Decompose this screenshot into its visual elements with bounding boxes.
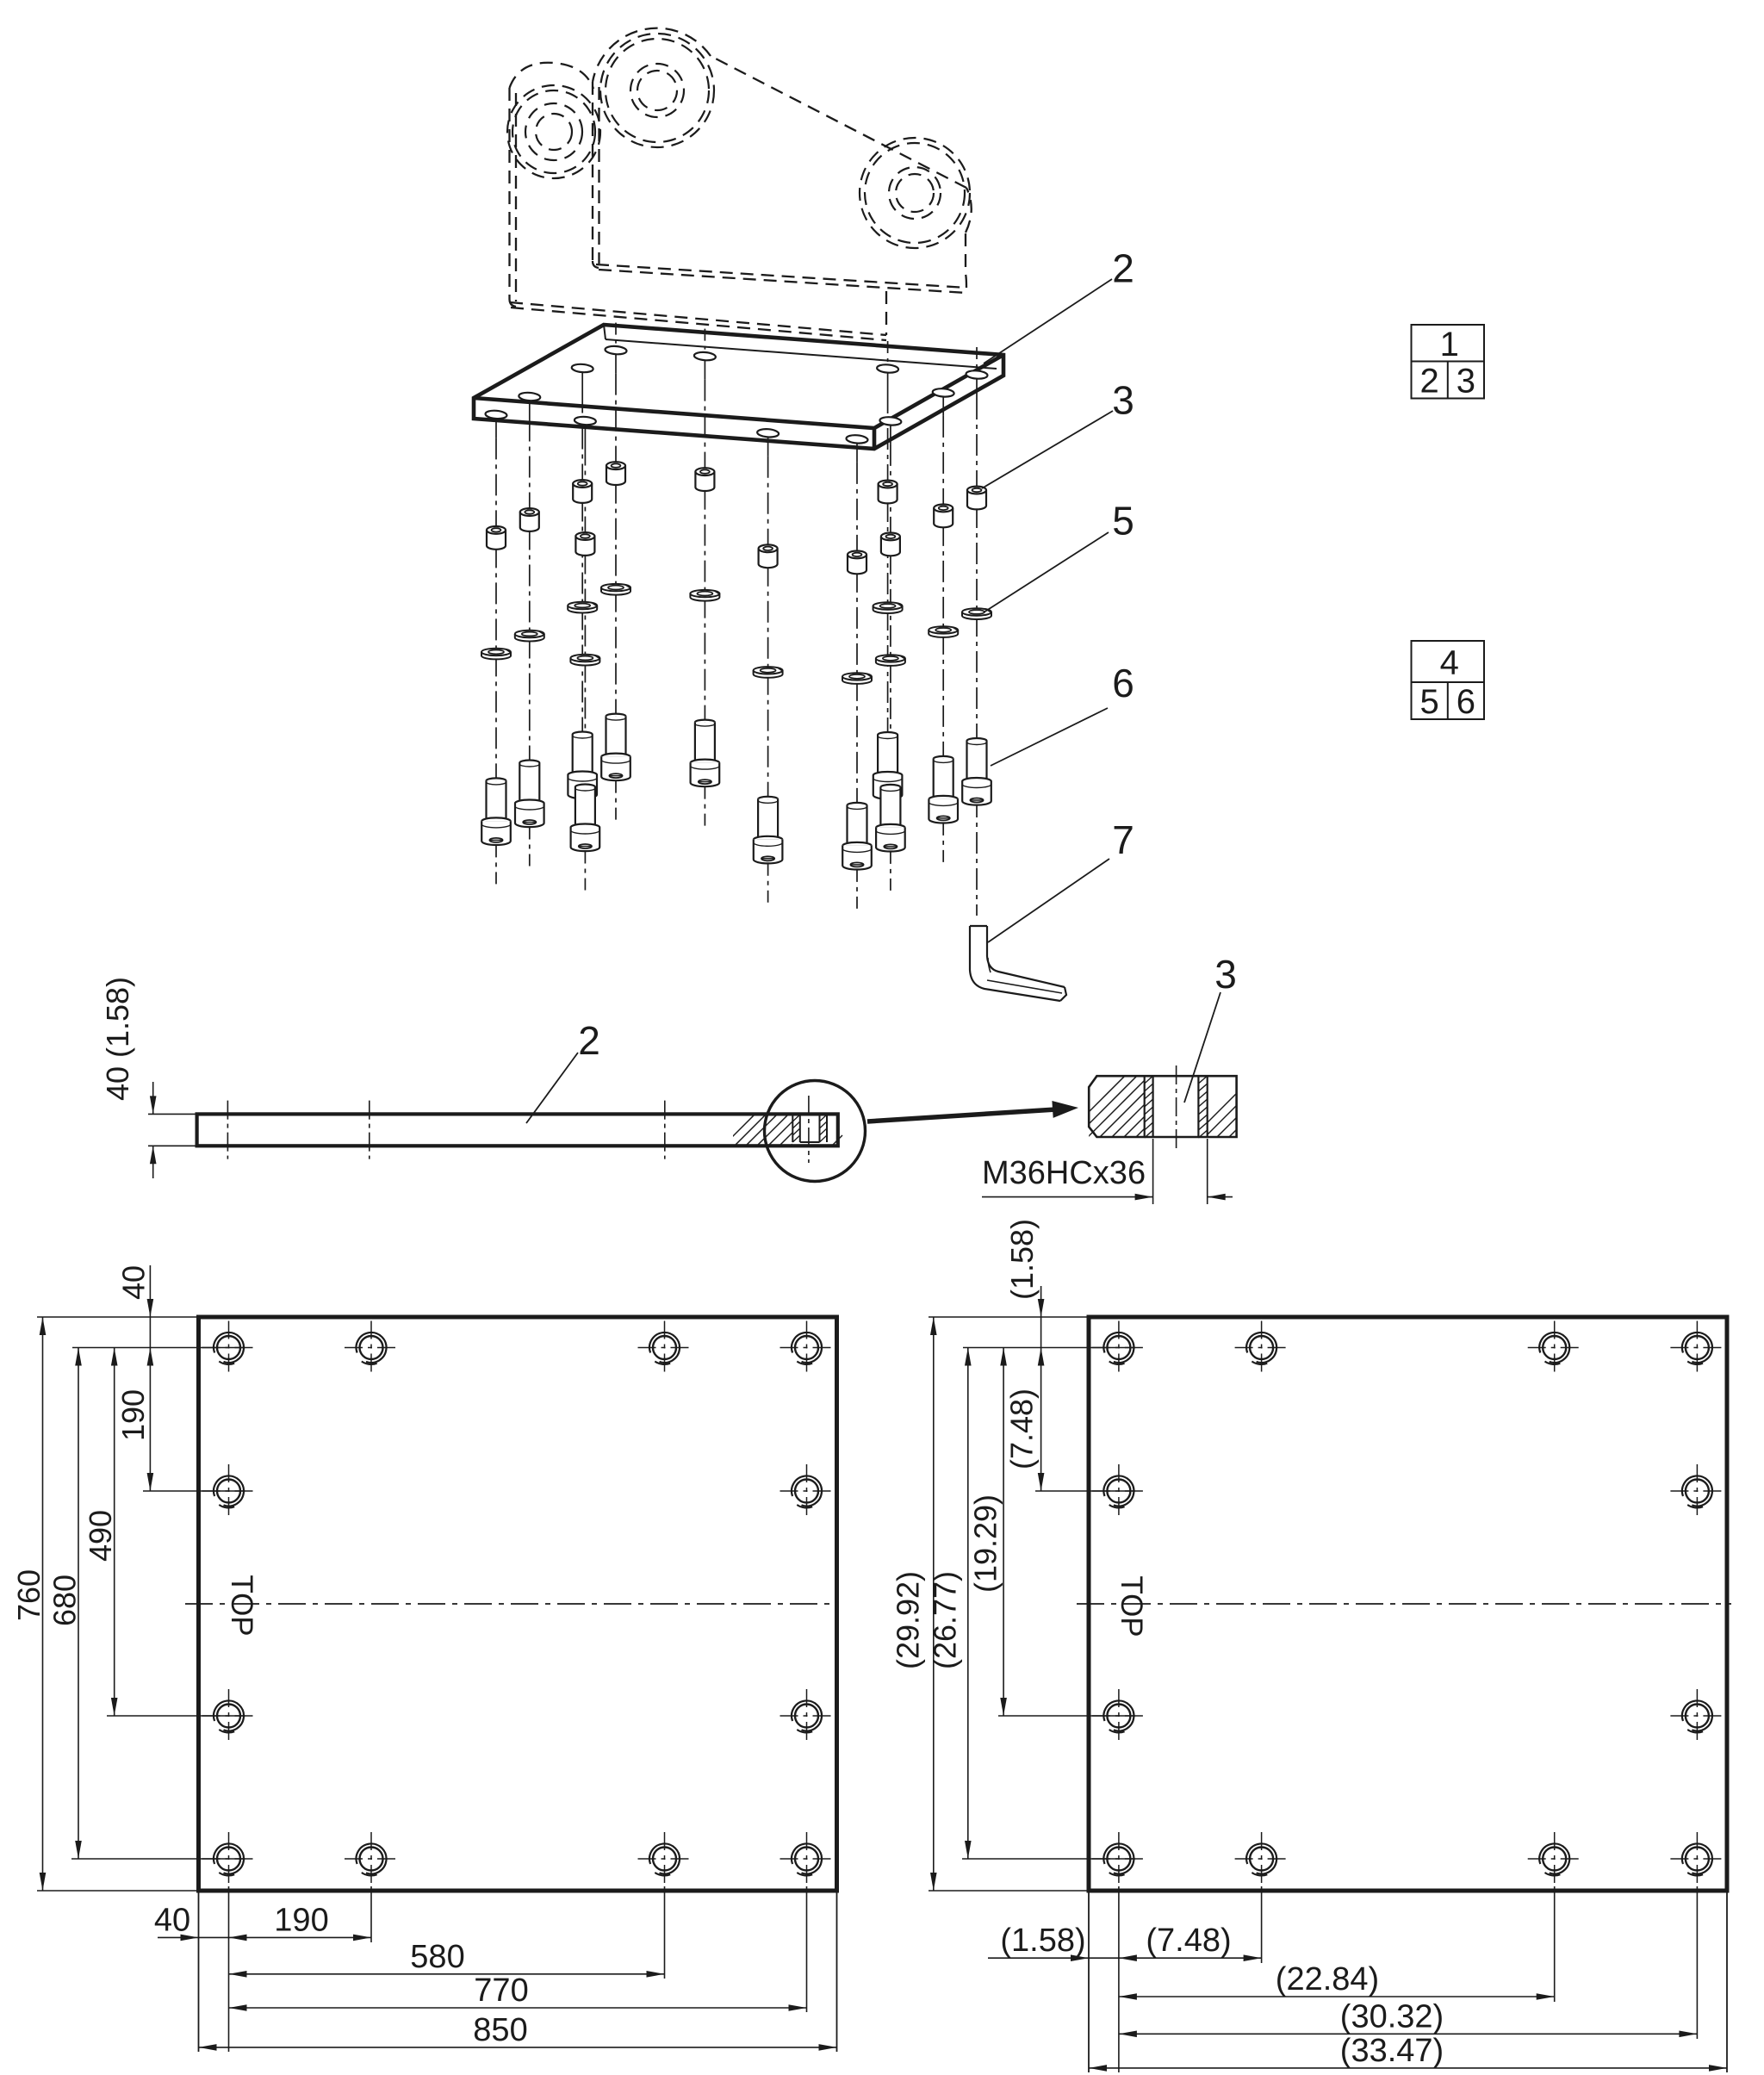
svg-text:(19.29): (19.29) bbox=[968, 1494, 1003, 1593]
svg-text:760: 760 bbox=[11, 1569, 47, 1621]
svg-text:(7.48): (7.48) bbox=[1146, 1923, 1231, 1959]
svg-text:40: 40 bbox=[154, 1902, 190, 1938]
svg-text:3: 3 bbox=[1112, 378, 1134, 423]
svg-text:(1.58): (1.58) bbox=[1004, 1219, 1040, 1300]
svg-text:40: 40 bbox=[116, 1265, 152, 1300]
svg-text:190: 190 bbox=[115, 1389, 151, 1441]
svg-text:2: 2 bbox=[578, 1018, 600, 1063]
svg-text:(29.92): (29.92) bbox=[891, 1571, 926, 1669]
svg-text:(33.47): (33.47) bbox=[1340, 2033, 1444, 2069]
svg-text:2: 2 bbox=[1112, 246, 1134, 291]
svg-text:(22.84): (22.84) bbox=[1276, 1961, 1379, 1997]
svg-text:1: 1 bbox=[1440, 326, 1459, 363]
svg-text:770: 770 bbox=[474, 1972, 528, 2009]
svg-text:TOP: TOP bbox=[1115, 1575, 1148, 1637]
svg-text:40 (1.58): 40 (1.58) bbox=[100, 977, 135, 1101]
svg-text:3: 3 bbox=[1457, 363, 1475, 401]
svg-text:6: 6 bbox=[1457, 683, 1475, 721]
svg-text:(30.32): (30.32) bbox=[1340, 1998, 1444, 2035]
svg-text:7: 7 bbox=[1112, 817, 1134, 862]
svg-text:(1.58): (1.58) bbox=[1000, 1923, 1085, 1959]
svg-text:3: 3 bbox=[1214, 952, 1237, 997]
svg-text:490: 490 bbox=[83, 1510, 118, 1562]
svg-text:4: 4 bbox=[1440, 644, 1459, 682]
svg-text:5: 5 bbox=[1112, 499, 1134, 544]
svg-text:580: 580 bbox=[410, 1939, 464, 1975]
svg-text:TOP: TOP bbox=[225, 1575, 258, 1636]
svg-text:5: 5 bbox=[1419, 683, 1438, 721]
svg-text:(7.48): (7.48) bbox=[1004, 1389, 1040, 1469]
svg-text:M36HCx36: M36HCx36 bbox=[982, 1155, 1146, 1191]
svg-text:6: 6 bbox=[1112, 661, 1134, 705]
svg-text:850: 850 bbox=[473, 2012, 527, 2048]
svg-text:2: 2 bbox=[1419, 363, 1438, 401]
svg-text:(26.77): (26.77) bbox=[928, 1571, 963, 1669]
svg-text:190: 190 bbox=[274, 1902, 328, 1938]
svg-text:680: 680 bbox=[47, 1575, 83, 1626]
